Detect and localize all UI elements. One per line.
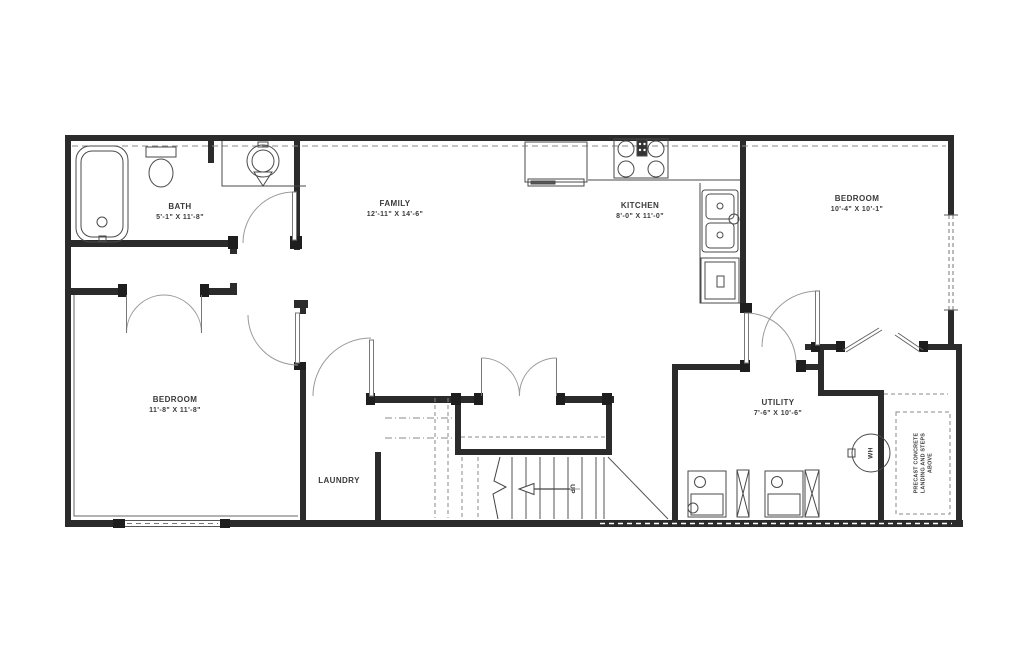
washer-knob (695, 477, 706, 488)
label-kitchen: KITCHEN (621, 201, 659, 210)
kitchen-sink-unit (702, 190, 738, 252)
stove-burner (648, 161, 664, 177)
label-utility: UTILITY (761, 398, 794, 407)
wall-toilet-stub (208, 141, 214, 163)
stairs: UP (493, 457, 668, 519)
windows (125, 215, 958, 528)
label-family: FAMILY (380, 199, 411, 208)
wall-hall-jamb (294, 300, 308, 308)
wall-exterior-right-lower (956, 344, 962, 527)
refrigerator (525, 142, 587, 182)
wall-exterior-right-upper (948, 135, 954, 215)
bedroom1-entry-door-arc (248, 315, 298, 365)
window-bedroom2 (947, 215, 955, 310)
bedroom1-furring-line (74, 295, 298, 516)
door-jambs (113, 236, 928, 528)
bedroom1-double-door-arc-right (164, 295, 202, 333)
wall-bedroom1-top-left (65, 288, 125, 295)
landing-note: PRECAST CONCRETE LANDING AND STEPS ABOVE (913, 432, 933, 493)
label-kitchen-dims: 8'-0" X 11'-0" (616, 213, 664, 220)
toilet-tank (146, 147, 176, 157)
room-labels: BATH 5'-1" X 11'-8" FAMILY 12'-11" X 14'… (149, 194, 883, 485)
landing-note-line3: ABOVE (927, 453, 933, 473)
wall-utility-left (672, 364, 678, 520)
bedroom2-door-leaf (816, 291, 820, 345)
floor-plan-page: UP (0, 0, 1024, 662)
label-water-heater: WH (868, 447, 875, 459)
bath-door-arc (243, 192, 294, 243)
label-utility-dims: 7'-6" X 10'-6" (754, 410, 802, 417)
stove-burner (648, 141, 664, 157)
label-bedroom1: BEDROOM (153, 395, 198, 404)
stair-break-line (493, 457, 506, 519)
utility-door-leaf (745, 313, 749, 363)
wall-hall-upper (300, 308, 306, 314)
stairs-up-label: UP (568, 484, 575, 494)
refrigerator-handle (531, 181, 555, 184)
bathtub-drain (97, 217, 107, 227)
wall-utility-right (878, 396, 884, 527)
landing-note-line2: LANDING AND STEPS (920, 433, 926, 493)
dishwasher (701, 258, 739, 303)
wall-utility-top-left (672, 364, 748, 370)
label-bath: BATH (168, 202, 191, 211)
label-laundry: LAUNDRY (318, 476, 360, 485)
bath-door-leaf (293, 192, 297, 240)
dryer-knob (772, 477, 783, 488)
kitchen-sink-basin (706, 223, 734, 248)
dryer-door (768, 494, 800, 515)
utility-door-arc (746, 313, 796, 363)
vanity-front-mark (254, 172, 272, 186)
wall-bath-bottom (65, 240, 237, 247)
closet-double-door-arc-left (482, 358, 520, 396)
wall-laundry-top (370, 396, 480, 403)
label-family-dims: 12'-11" X 14'-6" (367, 211, 423, 218)
wall-laundry-left (300, 364, 306, 520)
wall-exterior-left (65, 135, 71, 527)
laundry-door-arc (313, 338, 371, 396)
wall-closet-bottom (455, 449, 612, 455)
walls (65, 135, 963, 527)
fixtures (76, 139, 890, 517)
understair-diagonal (608, 457, 668, 519)
wall-kitchen-bedroom-divider (740, 135, 746, 313)
wall-exterior-top (65, 135, 954, 141)
stove-burner (618, 141, 634, 157)
wall-vestibule-bottom (818, 390, 884, 396)
furring-lines (74, 295, 298, 516)
stove-control-panel (637, 139, 647, 156)
stove-burner (618, 161, 634, 177)
laundry-door-leaf (370, 340, 374, 396)
entry-angled-doors (843, 328, 923, 352)
landing-note-line1: PRECAST CONCRETE (913, 432, 919, 493)
bedroom1-entry-door-leaf (296, 313, 300, 363)
closet-double-door-arc-right (519, 358, 556, 396)
bathtub (76, 146, 128, 242)
label-bedroom2-dims: 10'-4" X 10'-1" (831, 206, 884, 213)
vanity-counter (222, 141, 306, 186)
wall-laundry-right (375, 452, 381, 520)
floor-plan-drawing: UP (0, 0, 1024, 662)
label-bath-dims: 5'-1" X 11'-8" (156, 214, 204, 221)
kitchen-sink-basin (706, 194, 734, 219)
toilet-bowl (149, 159, 173, 187)
label-bedroom1-dims: 11'-8" X 11'-8" (149, 407, 201, 414)
bedroom1-double-door-arc-left (127, 295, 165, 333)
label-bedroom2: BEDROOM (835, 194, 880, 203)
